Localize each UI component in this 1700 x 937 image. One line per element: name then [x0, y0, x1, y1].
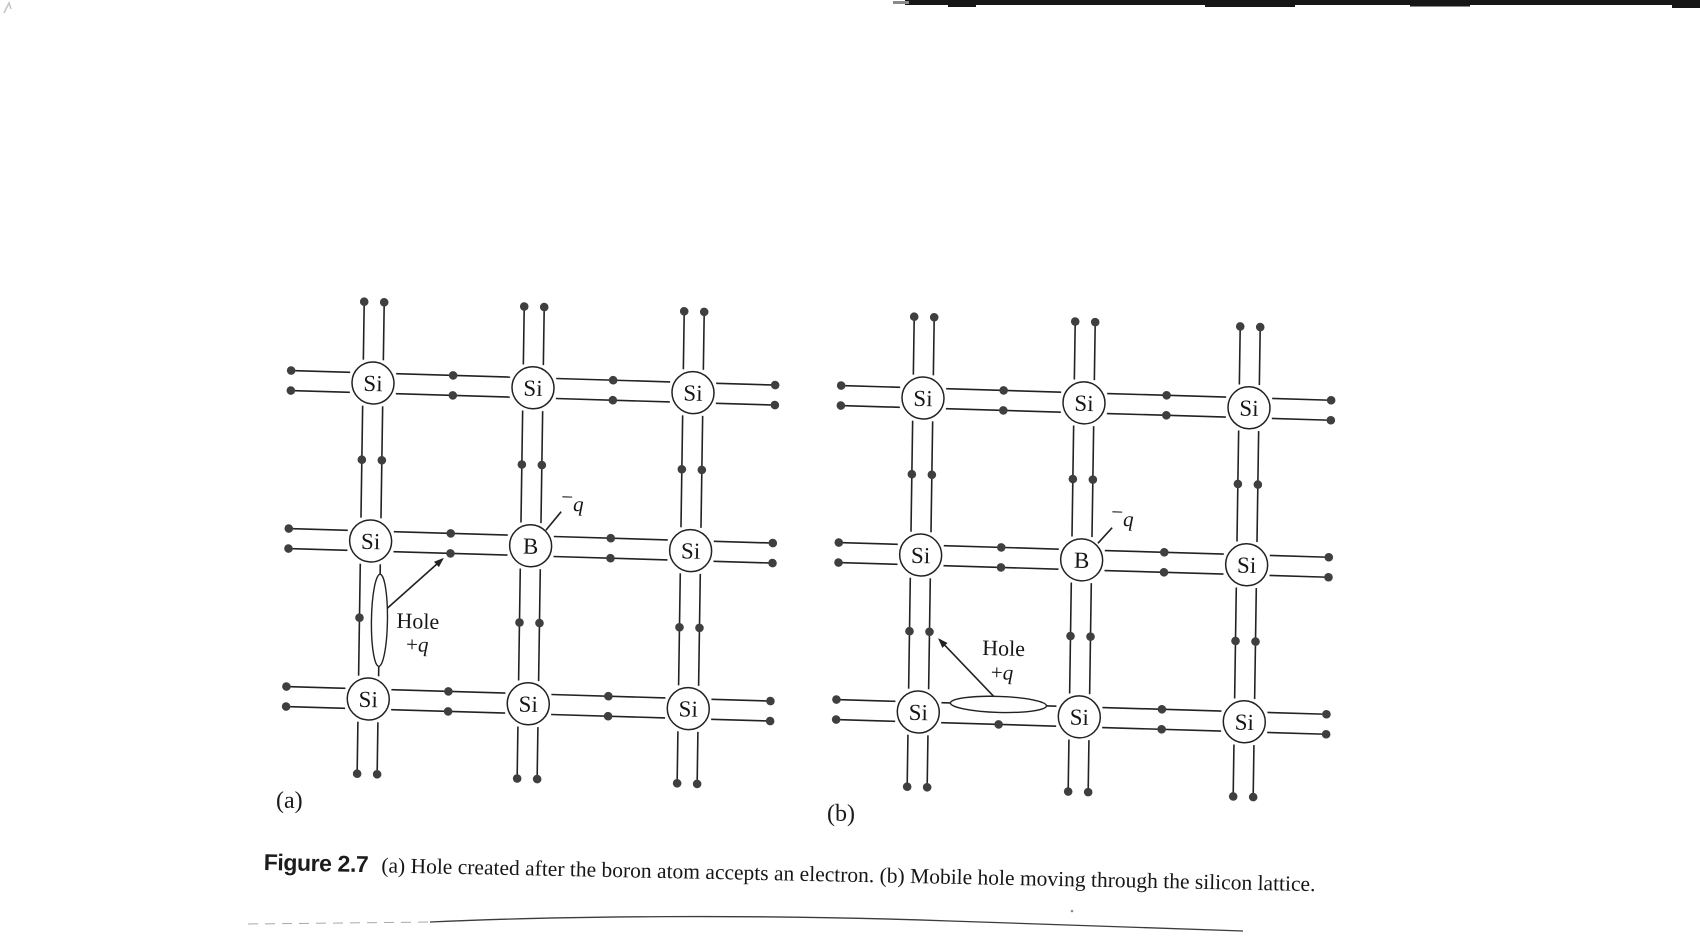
hole-label: Hole — [982, 635, 1025, 661]
electron-dot — [1068, 475, 1077, 484]
bond-stub — [1269, 575, 1324, 577]
electron-dot — [766, 717, 775, 726]
electron-dot — [1322, 730, 1331, 739]
hole-charge-label: +q — [406, 632, 429, 657]
electron-dot — [1086, 632, 1095, 641]
electron-dot — [999, 406, 1008, 415]
acceptor-charge-label: −q — [1111, 500, 1134, 532]
electron-dot — [695, 623, 704, 632]
electron-dot — [1256, 323, 1265, 332]
bond-stub — [716, 383, 771, 385]
atom-symbol: Si — [681, 538, 701, 564]
electron-dot — [287, 366, 296, 375]
scan-bottom-curve-faint — [248, 922, 430, 924]
electron-dot — [927, 470, 936, 479]
bond-stub — [293, 529, 348, 531]
bond-stub — [295, 371, 350, 373]
electron-dot — [832, 715, 841, 724]
electron-dot — [905, 627, 914, 636]
electron-dot — [1231, 637, 1240, 646]
atom-symbol: B — [1074, 548, 1090, 573]
scan-edge-top-bar-fade — [893, 1, 909, 4]
bond-stub — [1267, 732, 1322, 734]
bond-stub — [1270, 555, 1325, 557]
acceptor-charge-label: −q — [561, 485, 584, 517]
electron-dot — [837, 381, 846, 390]
electron-dot — [1158, 705, 1167, 714]
electron-dot — [284, 544, 293, 553]
bond-stub — [907, 735, 908, 783]
electron-dot — [680, 307, 689, 316]
hole-label: Hole — [396, 608, 439, 634]
electron-dot — [1229, 792, 1238, 801]
bond-stub — [843, 543, 898, 545]
electron-dot — [1162, 411, 1171, 420]
bond-stub — [1259, 331, 1260, 385]
electron-dot — [923, 783, 932, 792]
atom-symbol: Si — [1235, 709, 1255, 735]
electron-dot — [832, 695, 841, 704]
atom-symbol: Si — [913, 386, 933, 412]
scan-edge-top-bar-bump — [1205, 0, 1295, 7]
electron-dot — [693, 779, 702, 788]
electron-dot — [1251, 637, 1260, 646]
electron-dot — [675, 623, 684, 632]
electron-dot — [994, 720, 1003, 729]
bond-stub — [713, 561, 768, 563]
electron-dot — [766, 697, 775, 706]
bond-stub — [1088, 740, 1089, 788]
electron-dot — [533, 775, 542, 784]
scan-speck — [1071, 910, 1074, 913]
electron-dot — [697, 465, 706, 474]
electron-dot — [903, 782, 912, 791]
electron-dot — [834, 558, 843, 567]
electron-dot — [448, 391, 457, 400]
bond-stub — [677, 731, 678, 779]
electron-dot — [1327, 396, 1336, 405]
diagram-a-label: (a) — [276, 788, 303, 815]
acceptor-leader-line — [1098, 527, 1112, 543]
hole-ellipse — [950, 695, 1046, 714]
electron-dot — [444, 687, 453, 696]
bond-stub — [703, 316, 704, 370]
atom-symbol: Si — [1070, 705, 1090, 731]
bond-stub — [290, 707, 345, 709]
electron-dot — [1324, 553, 1333, 562]
atom-symbol: Si — [678, 696, 698, 722]
atom-symbol: Si — [358, 687, 378, 713]
electron-dot — [520, 302, 529, 311]
scan-edge-top-bar — [905, 0, 1700, 5]
figure-canvas: SiSiSiSiBSiSiSiSiHole+q−q SiSiSiSiBSiSiS… — [0, 0, 1700, 937]
electron-dot — [768, 559, 777, 568]
electron-dot — [1071, 317, 1080, 326]
electron-dot — [925, 627, 934, 636]
electron-dot — [515, 618, 524, 627]
electron-dot — [677, 465, 686, 474]
electron-dot — [997, 563, 1006, 572]
electron-dot — [1249, 793, 1258, 802]
electron-dot — [1066, 632, 1075, 641]
electron-dot — [446, 549, 455, 558]
atom-symbol: Si — [909, 700, 929, 726]
atom-symbol: B — [523, 534, 539, 559]
bond-stub — [711, 699, 766, 701]
electron-dot — [353, 769, 362, 778]
bond-stub — [714, 541, 769, 543]
electron-dot — [360, 297, 369, 306]
atom-symbol: Si — [361, 529, 381, 555]
bond-stub — [383, 306, 384, 360]
bond-stub — [697, 732, 698, 780]
figure-number: Figure 2.7 — [263, 849, 368, 877]
electron-dot — [282, 702, 291, 711]
electron-dot — [357, 455, 366, 464]
atom-symbol: Si — [518, 692, 538, 718]
electron-dot — [1233, 480, 1242, 489]
electron-dot — [286, 386, 295, 395]
electron-dot — [907, 470, 916, 479]
acceptor-leader-line — [546, 511, 561, 530]
electron-dot — [446, 529, 455, 538]
lattice-diagram-a: SiSiSiSiBSiSiSiSiHole+q−q — [281, 295, 781, 790]
electron-dot — [770, 401, 779, 410]
electron-dot — [1084, 788, 1093, 797]
electron-dot — [284, 524, 293, 533]
electron-dot — [1162, 391, 1171, 400]
bond-stub — [913, 321, 914, 375]
bond-stub — [377, 722, 378, 770]
electron-dot — [1160, 548, 1169, 557]
electron-dot — [513, 774, 522, 783]
bond-stub — [357, 722, 358, 770]
bond-stub — [295, 391, 350, 393]
bond-stub — [292, 549, 347, 551]
electron-dot — [768, 539, 777, 548]
bond-stub — [1233, 744, 1234, 792]
electron-dot — [1157, 725, 1166, 734]
bond-stub — [840, 700, 895, 702]
hole-arrow-line — [382, 557, 443, 615]
bond-stub — [683, 315, 684, 369]
bond-stub — [1239, 330, 1240, 384]
bond-stub — [363, 306, 364, 360]
electron-dot — [1326, 416, 1335, 425]
bond-stub — [845, 406, 900, 408]
bond-stub — [1068, 740, 1069, 788]
bond-stub — [1272, 398, 1327, 400]
electron-dot — [517, 460, 526, 469]
electron-dot — [834, 538, 843, 547]
hole-charge-label: +q — [991, 660, 1014, 685]
atom-symbol: Si — [363, 371, 383, 397]
electron-dot — [373, 770, 382, 779]
bond-stub — [543, 311, 544, 365]
electron-dot — [608, 396, 617, 405]
electron-dot — [537, 461, 546, 470]
electron-dot — [1236, 322, 1245, 331]
atom-symbol: Si — [1074, 391, 1094, 417]
bond-stub — [1074, 326, 1075, 380]
bond-stub — [517, 727, 518, 775]
diagram-b-label: (b) — [827, 801, 855, 828]
electron-dot — [1064, 787, 1073, 796]
electron-dot — [1253, 480, 1262, 489]
atom-symbol: Si — [683, 380, 703, 406]
electron-dot — [540, 303, 549, 312]
scan-bottom-curve — [430, 917, 1243, 931]
electron-dot — [930, 313, 939, 322]
bond-stub — [842, 563, 897, 565]
electron-dot — [1322, 710, 1331, 719]
electron-dot — [910, 312, 919, 321]
electron-dot — [606, 534, 615, 543]
atom-symbol: Si — [523, 376, 543, 402]
electron-dot — [1160, 568, 1169, 577]
scan-edge-top-bar-bump — [948, 0, 976, 7]
bond-stub — [1272, 418, 1327, 420]
scan-corner-mark — [4, 3, 11, 13]
electron-dot — [609, 376, 618, 385]
electron-dot — [997, 543, 1006, 552]
bond-stub — [840, 720, 895, 722]
electron-dot — [673, 779, 682, 788]
electron-dot — [444, 707, 453, 716]
hole-ellipse — [371, 574, 388, 666]
atom-symbol: Si — [1237, 552, 1257, 578]
bond-stub — [933, 321, 934, 375]
electron-dot — [999, 386, 1008, 395]
electron-dot — [282, 682, 291, 691]
electron-dot — [606, 554, 615, 563]
electron-dot — [535, 619, 544, 628]
atom-symbol: Si — [911, 543, 931, 569]
electron-dot — [1324, 573, 1333, 582]
scan-artifacts — [4, 0, 1700, 931]
electron-dot — [700, 307, 709, 316]
scan-edge-top-bar-bump — [1410, 0, 1470, 7]
bond-stub — [1253, 745, 1254, 793]
bond-stub — [1094, 326, 1095, 380]
scanned-page: SiSiSiSiBSiSiSiSiHole+q−q SiSiSiSiBSiSiS… — [0, 0, 1700, 937]
electron-dot — [604, 692, 613, 701]
bond-stub — [537, 727, 538, 775]
bond-stub — [845, 386, 900, 388]
electron-dot — [377, 456, 386, 465]
bond-stub — [290, 687, 345, 689]
electron-dot — [1091, 318, 1100, 327]
electron-dot — [836, 401, 845, 410]
lattice-diagram-b: SiSiSiSiBSiSiSiSiHole+q−q — [831, 310, 1337, 804]
electron-dot — [355, 613, 364, 622]
bond-stub — [1267, 712, 1322, 714]
electron-dot — [1088, 475, 1097, 484]
bond-stub — [523, 311, 524, 365]
bond-stub — [927, 735, 928, 783]
bond-stub — [711, 719, 766, 721]
scan-edge-top-bar-bump — [1672, 0, 1700, 8]
electron-dot — [380, 298, 389, 307]
electron-dot — [604, 712, 613, 721]
electron-dot — [771, 381, 780, 390]
bond-stub — [716, 403, 771, 405]
electron-dot — [449, 371, 458, 380]
atom-symbol: Si — [1239, 395, 1259, 421]
